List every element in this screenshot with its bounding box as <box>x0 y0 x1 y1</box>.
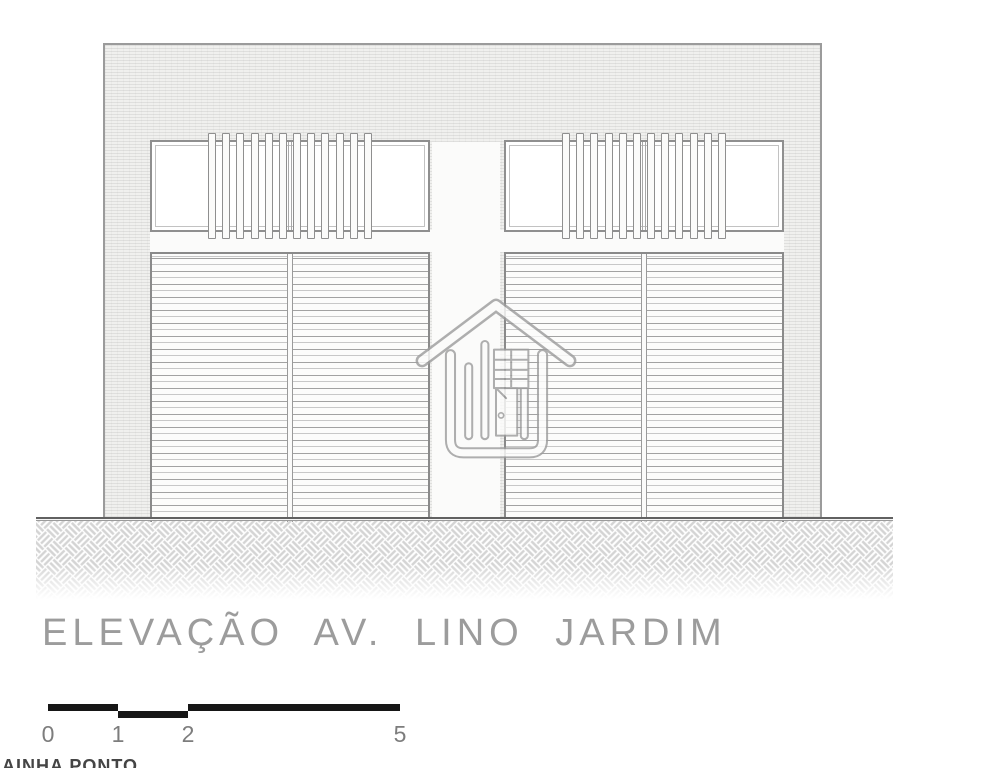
louver-slat <box>350 133 358 239</box>
scale-label-1: 1 <box>103 721 133 748</box>
watermark-clipped-text: AINHA PONTO <box>2 756 138 768</box>
louver-slat <box>619 133 627 239</box>
louver-slat <box>336 133 344 239</box>
window-right <box>504 140 784 232</box>
louver-slat <box>647 133 655 239</box>
louver-slat <box>236 133 244 239</box>
louver-slat <box>293 133 301 239</box>
scale-label-5: 5 <box>385 721 415 748</box>
roller-door-left-divider <box>287 254 293 522</box>
louver-slat <box>265 133 273 239</box>
louver-slat <box>364 133 372 239</box>
roller-door-right-divider <box>641 254 647 522</box>
louver-slat <box>279 133 287 239</box>
louver-slat <box>321 133 329 239</box>
scale-label-2: 2 <box>173 721 203 748</box>
louver-slat <box>222 133 230 239</box>
louver-slat <box>307 133 315 239</box>
louver-slat <box>661 133 669 239</box>
roller-door-left <box>150 252 430 522</box>
scale-bar-segment-1-2 <box>118 711 188 718</box>
louver-slat <box>251 133 259 239</box>
louver-slat <box>690 133 698 239</box>
louver-slat <box>576 133 584 239</box>
louver-slat <box>704 133 712 239</box>
louver-slat <box>633 133 641 239</box>
ground-hatch <box>36 521 893 599</box>
house-logo-icon <box>410 294 582 466</box>
louver-slat <box>590 133 598 239</box>
scale-bar-segment-2-5 <box>188 704 400 711</box>
drawing-title: ELEVAÇÃO AV. LINO JARDIM <box>42 612 727 655</box>
louver-slat <box>675 133 683 239</box>
louver-slats-left <box>208 133 372 239</box>
scale-label-0: 0 <box>33 721 63 748</box>
louver-slat <box>208 133 216 239</box>
louver-slats-right <box>562 133 726 239</box>
elevation-drawing-sheet: ELEVAÇÃO AV. LINO JARDIM 0 1 2 5 AINHA P… <box>0 0 989 768</box>
louver-slat <box>718 133 726 239</box>
window-left <box>150 140 430 232</box>
louver-slat <box>562 133 570 239</box>
scale-bar-segment-0-1 <box>48 704 118 711</box>
louver-slat <box>605 133 613 239</box>
